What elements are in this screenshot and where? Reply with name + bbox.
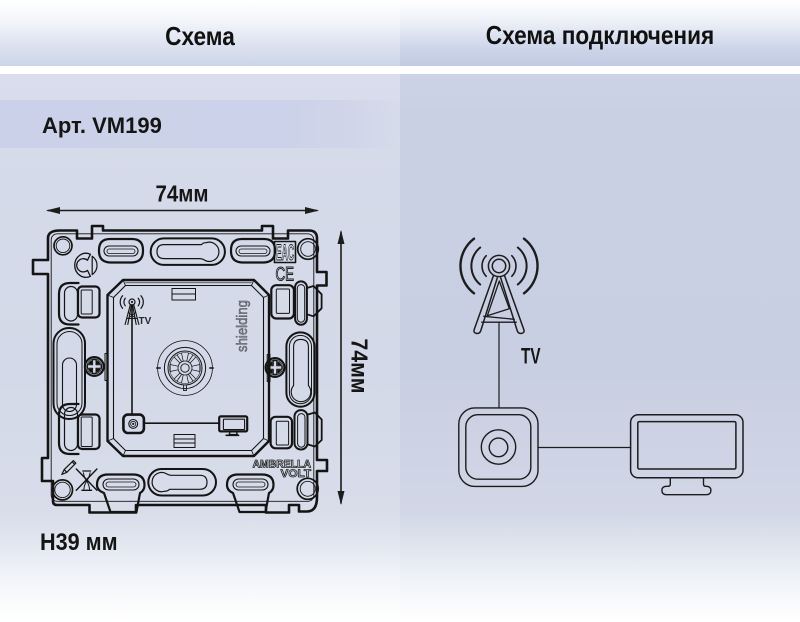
svg-text:EAC: EAC — [276, 240, 294, 265]
svg-text:74мм: 74мм — [156, 181, 209, 207]
svg-text:74мм: 74мм — [347, 339, 373, 394]
svg-text:VOLT: VOLT — [281, 468, 312, 480]
svg-text:CE: CE — [276, 265, 295, 286]
svg-text:TV: TV — [139, 316, 152, 327]
svg-text:shielding: shielding — [234, 300, 251, 352]
svg-text:TV: TV — [521, 344, 541, 369]
